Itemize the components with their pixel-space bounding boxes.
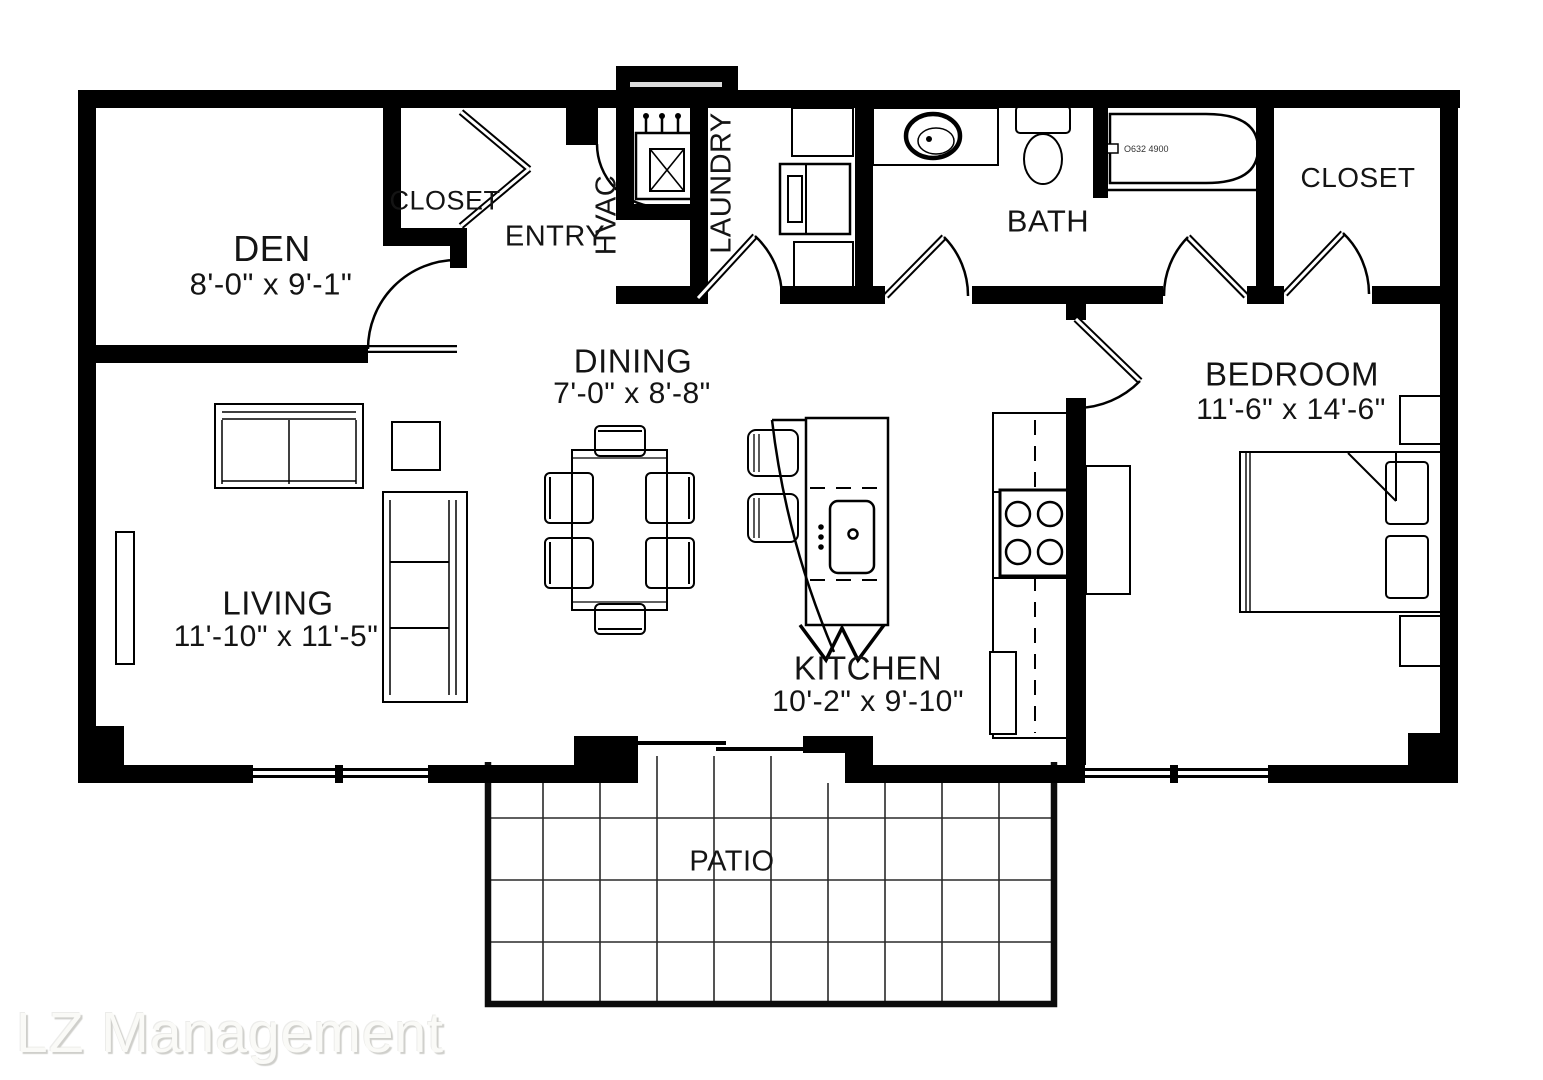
living-window <box>253 765 428 783</box>
bed <box>1240 452 1442 612</box>
bedroom-closet-door <box>1285 233 1369 294</box>
hvac-unit <box>636 113 696 199</box>
kitchen-dimensions: 10'-2" x 9'-10" <box>772 687 964 717</box>
floorplan: O632 4900 <box>0 0 1543 1080</box>
washer-dryer <box>780 108 853 294</box>
nightstand-top <box>1400 396 1442 444</box>
toilet <box>1016 106 1070 184</box>
dining-label: DINING <box>574 345 693 378</box>
loveseat <box>215 404 363 488</box>
entry-closet-label: CLOSET <box>389 188 500 215</box>
bedroom-dimensions: 11'-6" x 14'-6" <box>1196 395 1386 425</box>
bath-door-right <box>1164 237 1246 296</box>
kitchen-label: KITCHEN <box>794 652 942 685</box>
side-table <box>392 422 440 470</box>
bedroom-door <box>1076 319 1140 408</box>
living-wall-window <box>116 532 134 664</box>
bath-door-left <box>886 237 968 296</box>
tub-model-text: O632 4900 <box>1124 144 1169 154</box>
dresser <box>1086 466 1130 594</box>
dining-chairs <box>545 426 694 634</box>
bedroom-label: BEDROOM <box>1205 358 1379 391</box>
stove <box>1000 490 1068 576</box>
living-label: LIVING <box>222 587 333 620</box>
bedroom-window <box>1085 765 1268 783</box>
sofa <box>383 492 467 702</box>
watermark: LZ Management <box>16 1000 444 1066</box>
dining-dimensions: 7'-0" x 8'-8" <box>553 379 711 409</box>
bath-label: BATH <box>1007 206 1089 237</box>
bathtub: O632 4900 <box>1106 114 1258 190</box>
hvac-label: HVAC <box>593 175 622 255</box>
bathroom-vanity <box>873 108 998 165</box>
bedroom-closet-label: CLOSET <box>1300 164 1415 192</box>
patio-label: PATIO <box>689 848 774 877</box>
living-dimensions: 11'-10" x 11'-5" <box>174 622 379 652</box>
den-door <box>368 260 457 349</box>
den-label: DEN <box>233 231 311 267</box>
patio-grid <box>490 756 1053 1004</box>
laundry-label: LAUNDRY <box>708 112 737 254</box>
nightstand-bottom <box>1400 616 1442 666</box>
den-dimensions: 8'-0" x 9'-1" <box>190 269 353 300</box>
patio-sliding-door <box>638 741 804 751</box>
